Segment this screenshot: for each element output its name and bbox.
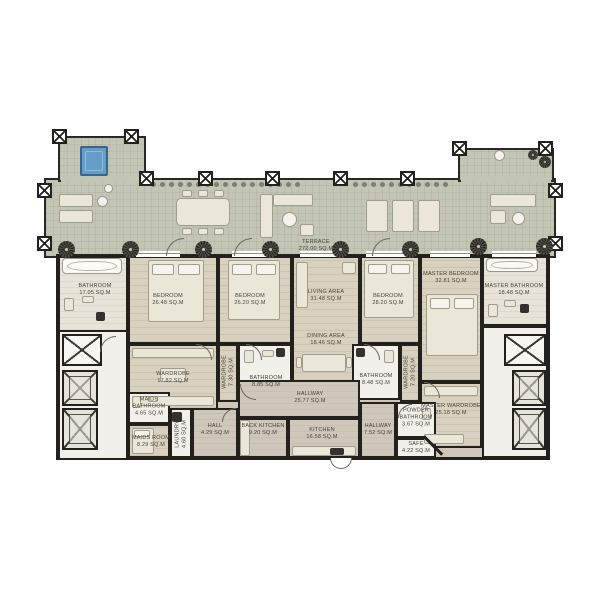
- sofa: [296, 262, 308, 308]
- column-marker-icon: [400, 171, 415, 186]
- jacuzzi-icon: [80, 146, 108, 176]
- side-table: [494, 150, 505, 161]
- armchair: [300, 224, 314, 236]
- chair: [346, 357, 352, 368]
- stairwell-icon: [62, 334, 102, 366]
- toilet: [384, 350, 394, 363]
- window: [492, 251, 536, 257]
- armchair: [342, 262, 356, 274]
- wardrobe-island: [160, 368, 186, 382]
- elevator-icon: [62, 408, 98, 450]
- plant-icon: [262, 241, 279, 258]
- toilet: [422, 408, 431, 420]
- elevator-icon: [62, 370, 98, 406]
- sink: [82, 296, 94, 303]
- column-marker-icon: [52, 129, 67, 144]
- room-wardrobe-2: [218, 344, 238, 402]
- entrance-door-arc: [330, 458, 352, 469]
- column-marker-icon: [124, 129, 139, 144]
- column-marker-icon: [333, 171, 348, 186]
- plant-icon: [332, 241, 349, 258]
- pillow: [256, 264, 276, 275]
- bathtub-icon: [486, 258, 538, 272]
- shower: [96, 312, 105, 321]
- lounger: [392, 200, 414, 232]
- sink: [262, 350, 274, 357]
- plant-icon: [536, 238, 553, 255]
- dining-table: [302, 354, 346, 372]
- window: [430, 251, 470, 257]
- plant-icon: [402, 241, 419, 258]
- coffee-table: [282, 212, 297, 227]
- column-marker-icon: [139, 171, 154, 186]
- shower: [276, 348, 285, 357]
- pillow: [134, 430, 150, 437]
- lounger: [59, 210, 93, 223]
- coffee-table: [512, 212, 525, 225]
- chair: [198, 190, 208, 197]
- floor-plan: TERRACE272.00 SQ.M BATHROOM17.05 SQ.M BE…: [0, 0, 600, 600]
- pillow: [178, 264, 200, 275]
- stairwell-icon: [504, 334, 546, 366]
- column-marker-icon: [452, 141, 467, 156]
- column-marker-icon: [538, 141, 553, 156]
- pillow: [232, 264, 252, 275]
- elevator-icon: [512, 408, 546, 450]
- kitchen-counter: [292, 446, 356, 456]
- column-marker-icon: [37, 236, 52, 251]
- outdoor-sofa: [273, 194, 313, 206]
- toilet: [132, 396, 141, 408]
- plant-icon: [539, 156, 551, 168]
- sink: [148, 396, 158, 402]
- chair: [214, 190, 224, 197]
- outdoor-dining-table: [176, 198, 230, 226]
- armchair: [490, 210, 506, 224]
- side-table: [97, 196, 108, 207]
- side-table: [104, 184, 113, 193]
- stove: [330, 448, 344, 455]
- plant-icon: [470, 238, 487, 255]
- lounger: [59, 194, 93, 207]
- room-hallway-1: [238, 380, 360, 418]
- elevator-icon: [512, 370, 546, 406]
- lounger: [366, 200, 388, 232]
- room-hallway-2: [360, 402, 396, 458]
- chair: [296, 357, 302, 368]
- chair: [182, 228, 192, 235]
- closet: [132, 396, 214, 406]
- chair: [214, 228, 224, 235]
- lounger: [418, 200, 440, 232]
- pillow: [430, 298, 450, 309]
- chair: [198, 228, 208, 235]
- bathtub-icon: [62, 258, 122, 274]
- plant-icon: [58, 241, 75, 258]
- column-marker-icon: [198, 171, 213, 186]
- room-wardrobe-3: [400, 344, 420, 402]
- column-marker-icon: [265, 171, 280, 186]
- pillow: [454, 298, 474, 309]
- toilet: [488, 304, 498, 317]
- plant-icon: [122, 241, 139, 258]
- shower: [520, 304, 529, 313]
- kitchen-counter: [240, 420, 250, 456]
- terrace-seam: [461, 176, 551, 182]
- plant-icon: [528, 150, 538, 160]
- outdoor-sofa: [490, 194, 536, 207]
- sink: [504, 300, 516, 307]
- toilet: [64, 298, 74, 311]
- terrace-seam: [61, 176, 143, 182]
- pillow: [368, 264, 387, 274]
- plant-icon: [195, 241, 212, 258]
- chair: [182, 190, 192, 197]
- column-marker-icon: [37, 183, 52, 198]
- washer: [172, 412, 182, 422]
- outdoor-sofa: [260, 194, 273, 238]
- column-marker-icon: [548, 183, 563, 198]
- pillow: [152, 264, 174, 275]
- pillow: [391, 264, 410, 274]
